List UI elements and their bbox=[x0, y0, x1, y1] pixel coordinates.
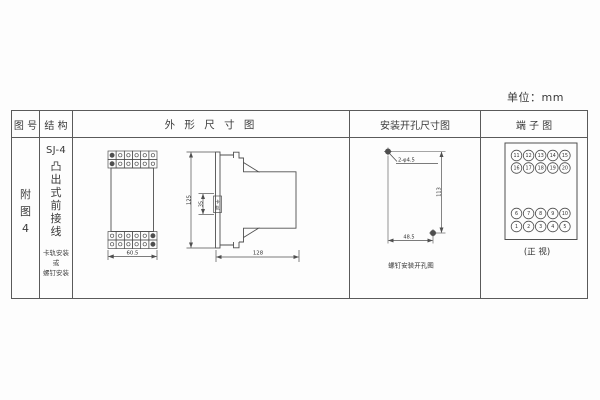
technical-sheet-page: { "unit_label": "单位：mm", "colors": { "li… bbox=[0, 0, 600, 400]
structure-type-label: 凸出式前接线 bbox=[51, 160, 62, 238]
list-item-text: 附 bbox=[20, 186, 31, 203]
unit-label: 单位：mm bbox=[507, 89, 564, 105]
list-item-text: 卡轨安装 bbox=[43, 249, 69, 259]
list-item-text: 4 bbox=[22, 220, 29, 237]
header-terminal-diagram: 端 子 图 bbox=[481, 111, 587, 138]
list-item-text: 或 bbox=[53, 259, 60, 269]
list-item-text: 式 bbox=[51, 186, 62, 199]
header-figure-no: 图 号 bbox=[12, 111, 40, 138]
list-item-text: 凸 bbox=[51, 160, 62, 173]
list-item-text: 螺钉安装 bbox=[43, 269, 69, 279]
list-item-text: 出 bbox=[51, 173, 62, 186]
header-outline-dims: 外 形 尺 寸 图 bbox=[73, 111, 350, 138]
cell-outline-drawing bbox=[73, 138, 350, 298]
model-label: SJ-4 bbox=[46, 145, 66, 156]
list-item-text: 线 bbox=[51, 225, 62, 238]
header-structure: 结 构 bbox=[40, 111, 73, 138]
cell-structure: SJ-4 凸出式前接线 卡轨安装或螺钉安装 bbox=[40, 138, 73, 298]
list-item-text: 前 bbox=[51, 199, 62, 212]
cell-figure-no: 附图4 bbox=[12, 138, 40, 298]
list-item-text: 接 bbox=[51, 212, 62, 225]
header-install-holes: 安装开孔尺寸图 bbox=[350, 111, 481, 138]
cell-install-drawing bbox=[350, 138, 481, 298]
mounting-notes: 卡轨安装或螺钉安装 bbox=[43, 249, 69, 278]
spec-table: 图 号 结 构 外 形 尺 寸 图 安装开孔尺寸图 端 子 图 附图4 SJ-4… bbox=[11, 110, 588, 299]
cell-terminal-diagram bbox=[481, 138, 587, 298]
list-item-text: 图 bbox=[20, 203, 31, 220]
